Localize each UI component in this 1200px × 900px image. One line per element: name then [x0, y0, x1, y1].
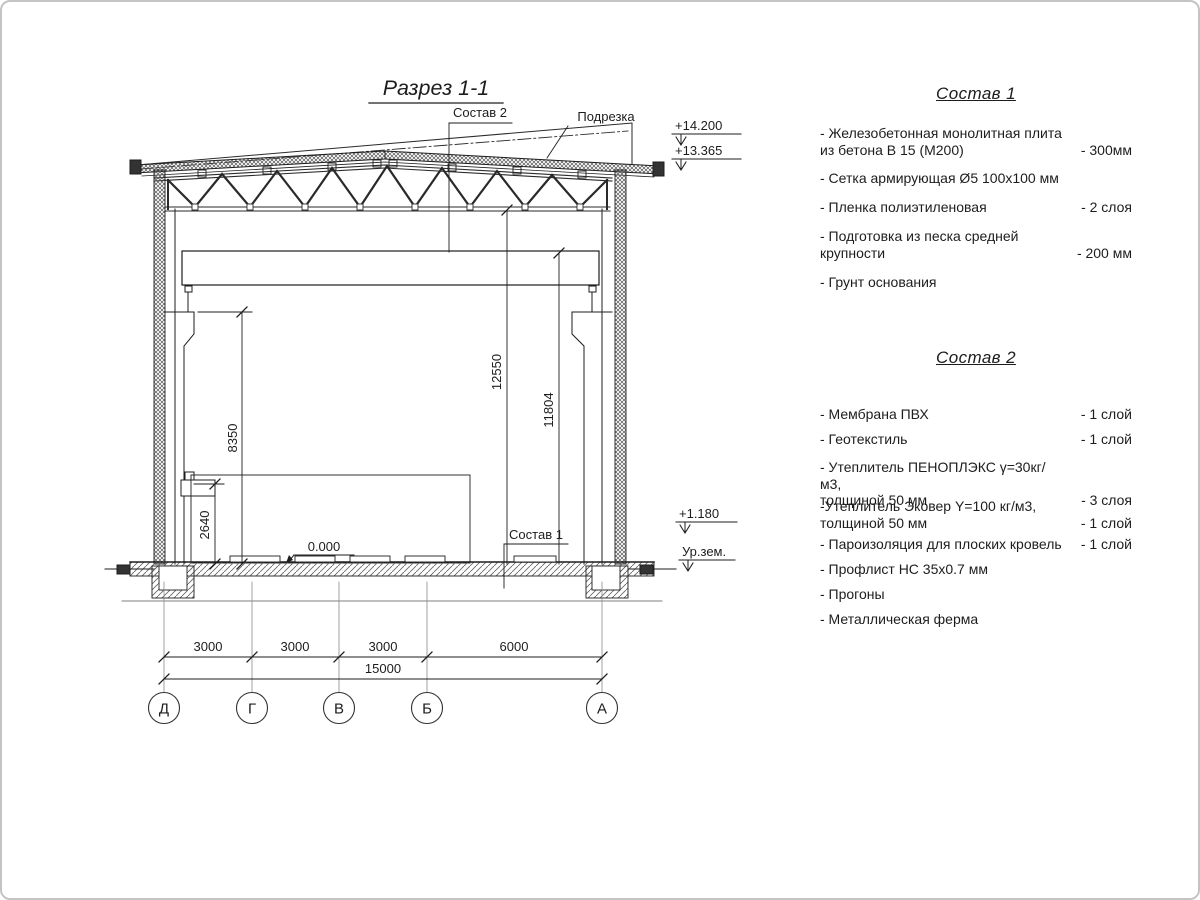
elevation-roof-low: +13.365: [672, 143, 741, 170]
material-qty: - 200 мм: [1071, 245, 1132, 262]
material-name: - Сетка армирующая Ø5 100x100 мм: [820, 170, 1059, 187]
eave-cap-left: [130, 160, 141, 174]
elevation-roof-low-text: +13.365: [675, 143, 722, 158]
axis-label-g: Г: [248, 701, 256, 718]
material-name: - Железобетонная монолитная плита из бет…: [820, 125, 1062, 158]
axis-label-v: В: [334, 701, 344, 718]
elevation-roof-top: +14.200: [672, 118, 741, 145]
eave-cap-right: [653, 162, 664, 176]
list-item: - Металлическая ферма: [820, 611, 1132, 628]
list-item: - Подготовка из песка средней крупности …: [820, 228, 1132, 261]
label-sostav2: Состав 2: [453, 105, 507, 120]
walls: [154, 170, 626, 564]
material-qty: - 1 слой: [1075, 515, 1132, 532]
list-item: - Железобетонная монолитная плита из бет…: [820, 125, 1132, 158]
list-item: - Пароизоляция для плоских кровель - 1 с…: [820, 536, 1132, 553]
material-name: - Пароизоляция для плоских кровель: [820, 536, 1062, 553]
elevation-ground: Ур.зем.: [679, 544, 735, 571]
material-name: - Прогоны: [820, 586, 885, 603]
material-name: - Мембрана ПВХ: [820, 406, 929, 423]
elevation-marks: +14.200 +13.365 +1.180 Ур.зем.: [672, 118, 741, 571]
dim-total: 15000: [365, 661, 401, 676]
composition1-title: Состав 1: [820, 84, 1132, 104]
material-name: - Грунт основания: [820, 274, 937, 291]
material-qty: - 300мм: [1075, 142, 1132, 159]
dim-span-1: 3000: [194, 639, 223, 654]
wall-left: [154, 170, 165, 564]
list-item: - Грунт основания: [820, 274, 1132, 291]
label-sostav1: Состав 1: [509, 527, 563, 542]
material-name: - Геотекстиль: [820, 431, 907, 448]
dim-span-2: 3000: [281, 639, 310, 654]
material-name: - Подготовка из песка средней крупности: [820, 228, 1019, 261]
drawing-title: Разрез 1-1: [369, 76, 503, 103]
dim-2640: 2640: [197, 511, 212, 540]
axis-label-d: Д: [159, 701, 169, 718]
material-name: -Утеплитель Эковер Y=100 кг/м3, толщиной…: [820, 498, 1036, 531]
material-name: - Пленка полиэтиленовая: [820, 199, 987, 216]
list-item: - Пленка полиэтиленовая - 2 слоя: [820, 199, 1132, 216]
material-qty: - 1 слой: [1075, 431, 1132, 448]
axis-label-a: А: [597, 701, 607, 718]
floor-slab: [130, 556, 654, 576]
list-item: -Утеплитель Эковер Y=100 кг/м3, толщиной…: [820, 498, 1132, 531]
composition2-title: Состав 2: [820, 348, 1132, 368]
axis-bubbles: Д Г В Б А: [149, 693, 618, 724]
material-qty: - 2 слоя: [1075, 199, 1132, 216]
material-name: - Металлическая ферма: [820, 611, 978, 628]
dim-chain: 3000 3000 3000 6000 15000: [159, 639, 607, 684]
label-podrezka: Подрезка: [577, 109, 635, 124]
dim-12550: 12550: [489, 354, 504, 390]
material-qty: - 1 слой: [1075, 406, 1132, 423]
section-drawing: Разрез 1-1: [2, 2, 772, 900]
elevation-ground-text: Ур.зем.: [682, 544, 726, 559]
dim-8350: 8350: [225, 424, 240, 453]
section-title-text: Разрез 1-1: [383, 76, 490, 100]
list-item: - Профлист НС 35x0.7 мм: [820, 561, 1132, 578]
zero-level-text: 0.000: [308, 539, 341, 554]
steel-truss: [154, 165, 612, 211]
elevation-roof-top-text: +14.200: [675, 118, 722, 133]
beam-post-right: [589, 286, 596, 292]
dim-11804: 11804: [541, 392, 556, 427]
list-item: - Сетка армирующая Ø5 100x100 мм: [820, 170, 1132, 187]
list-item: - Мембрана ПВХ - 1 слой: [820, 406, 1132, 423]
beam: [182, 251, 599, 285]
wall-right: [615, 170, 626, 564]
dim-span-3: 3000: [369, 639, 398, 654]
dim-span-4: 6000: [500, 639, 529, 654]
sheet: Разрез 1-1: [0, 0, 1200, 900]
elevation-plinth: +1.180: [676, 506, 737, 533]
elevation-plinth-text: +1.180: [679, 506, 719, 521]
material-qty: - 1 слой: [1075, 536, 1132, 553]
list-item: - Прогоны: [820, 586, 1132, 603]
axis-label-b: Б: [422, 701, 432, 718]
list-item: - Геотекстиль - 1 слой: [820, 431, 1132, 448]
beam-post-left: [185, 286, 192, 292]
material-name: - Профлист НС 35x0.7 мм: [820, 561, 988, 578]
